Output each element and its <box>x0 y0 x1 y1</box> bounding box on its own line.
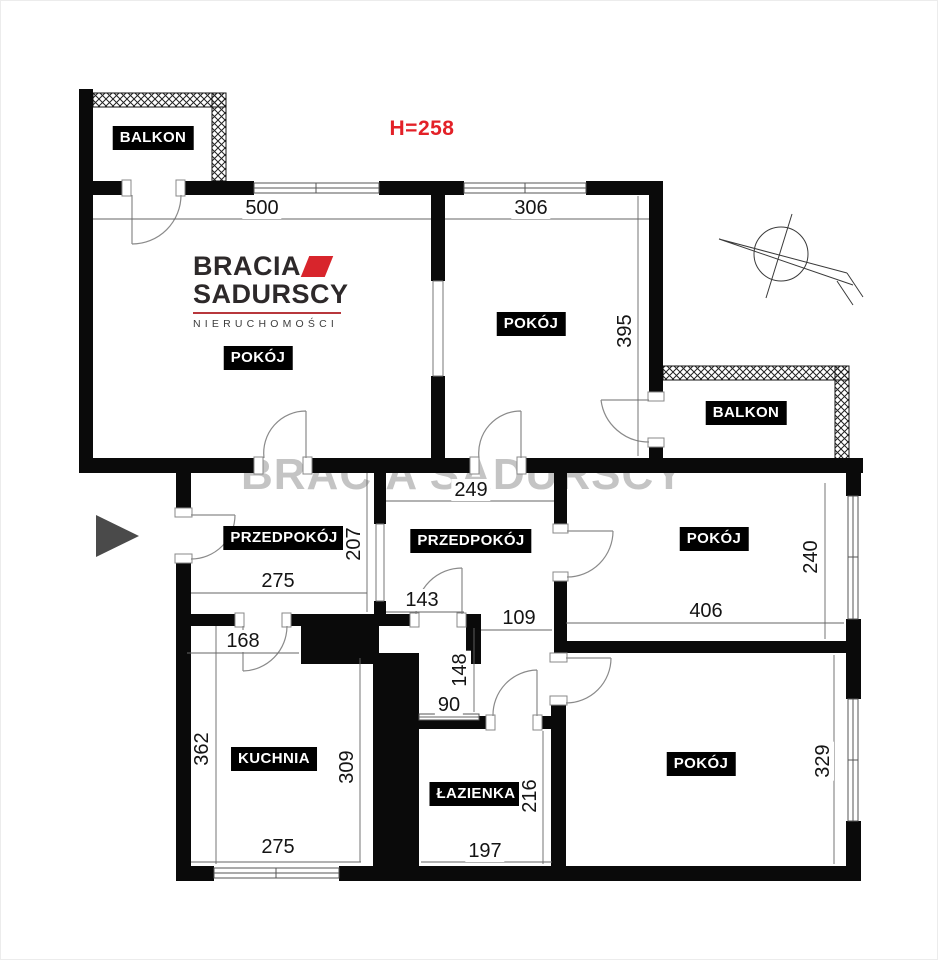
floor-plan: BRACIA SADURSCY <box>0 0 938 960</box>
room-label-kuchnia: KUCHNIA <box>231 747 317 771</box>
room-label-balkon-right: BALKON <box>706 401 787 425</box>
agency-logo: BRACIA SADURSCY NIERUCHOMOŚCI <box>193 252 353 330</box>
dim-275-hall: 275 <box>258 570 297 592</box>
dim-148: 148 <box>449 650 471 689</box>
room-label-przedpokoj-mid: PRZEDPOKÓJ <box>410 529 531 553</box>
dim-406: 406 <box>686 600 725 622</box>
dim-143: 143 <box>402 589 441 611</box>
dim-500: 500 <box>242 197 281 219</box>
dim-240: 240 <box>800 537 822 576</box>
dim-306: 306 <box>511 197 550 219</box>
room-label-przedpokoj-left: PRZEDPOKÓJ <box>223 526 344 550</box>
compass-icon <box>719 214 863 305</box>
logo-line2: SADURSCY <box>193 280 353 308</box>
dim-90: 90 <box>435 694 463 716</box>
dim-197: 197 <box>465 840 504 862</box>
dim-309: 309 <box>336 747 358 786</box>
dim-275-kitchen: 275 <box>258 836 297 858</box>
room-label-pokoj-top-left: POKÓJ <box>224 346 293 370</box>
dim-329: 329 <box>812 741 834 780</box>
logo-line1: BRACIA <box>193 252 301 280</box>
dim-362: 362 <box>191 729 213 768</box>
room-label-pokoj-bottom-right: POKÓJ <box>667 752 736 776</box>
entrance-arrow-icon <box>96 515 139 557</box>
dim-109: 109 <box>499 607 538 629</box>
dim-207: 207 <box>343 524 365 563</box>
room-label-pokoj-top-right: POKÓJ <box>497 312 566 336</box>
logo-subtitle: NIERUCHOMOŚCI <box>193 318 353 330</box>
dim-168: 168 <box>223 630 262 652</box>
ceiling-height-label: H=258 <box>390 117 455 141</box>
room-label-lazienka: ŁAZIENKA <box>429 782 522 806</box>
dim-216: 216 <box>519 776 541 815</box>
logo-red-parallelogram-icon <box>301 256 333 277</box>
room-label-pokoj-mid-right: POKÓJ <box>680 527 749 551</box>
room-label-balkon-left: BALKON <box>113 126 194 150</box>
dim-395: 395 <box>614 311 636 350</box>
logo-divider <box>193 312 341 314</box>
dim-249: 249 <box>451 479 490 501</box>
